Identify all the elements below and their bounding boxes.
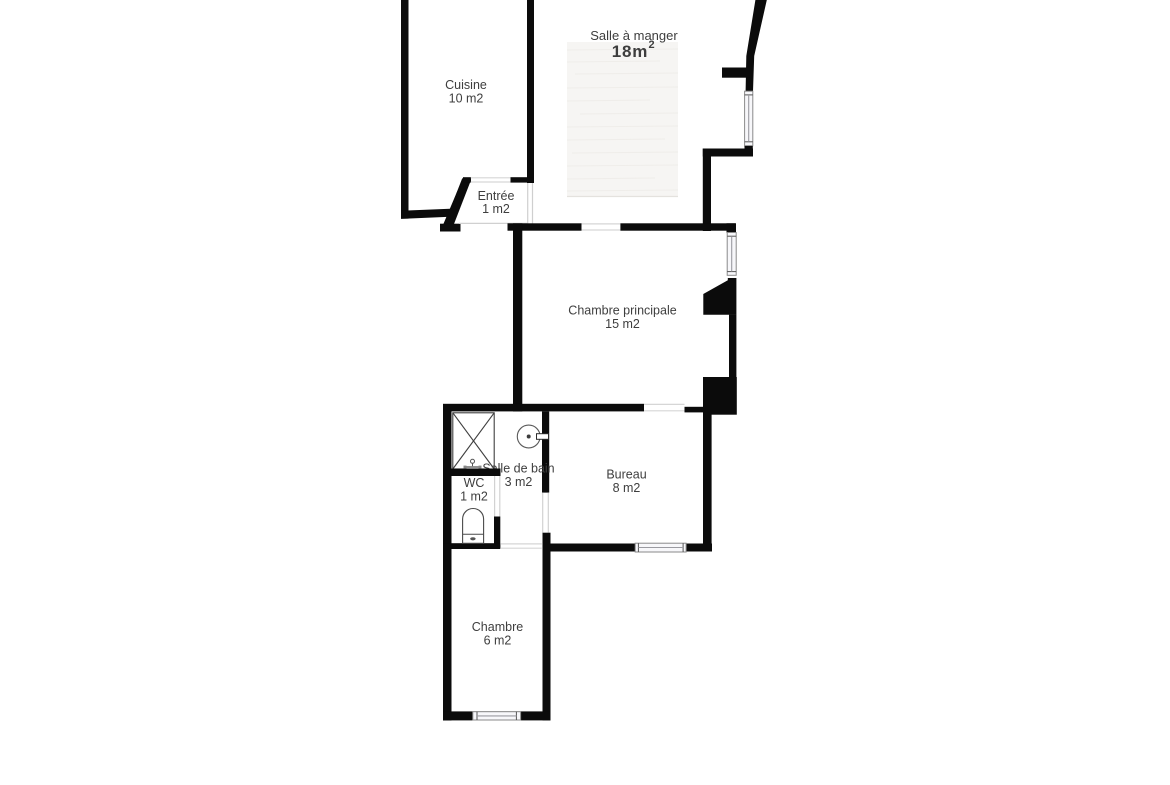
svg-text:Bureau: Bureau: [606, 468, 646, 482]
svg-text:WC: WC: [464, 476, 485, 490]
svg-text:18m: 18m: [612, 42, 648, 61]
svg-text:8 m2: 8 m2: [613, 481, 641, 495]
svg-text:2: 2: [648, 39, 654, 51]
svg-text:3 m2: 3 m2: [505, 475, 533, 489]
svg-text:Chambre principale: Chambre principale: [568, 304, 676, 318]
svg-text:Chambre: Chambre: [472, 620, 523, 634]
svg-text:Cuisine: Cuisine: [445, 78, 487, 92]
svg-text:6 m2: 6 m2: [484, 634, 512, 648]
svg-text:Salle à manger: Salle à manger: [590, 28, 678, 43]
svg-text:1 m2: 1 m2: [482, 202, 510, 216]
svg-text:15 m2: 15 m2: [605, 317, 640, 331]
svg-text:10 m2: 10 m2: [449, 92, 484, 106]
svg-text:1 m2: 1 m2: [460, 490, 488, 504]
svg-text:Entrée: Entrée: [478, 189, 515, 203]
